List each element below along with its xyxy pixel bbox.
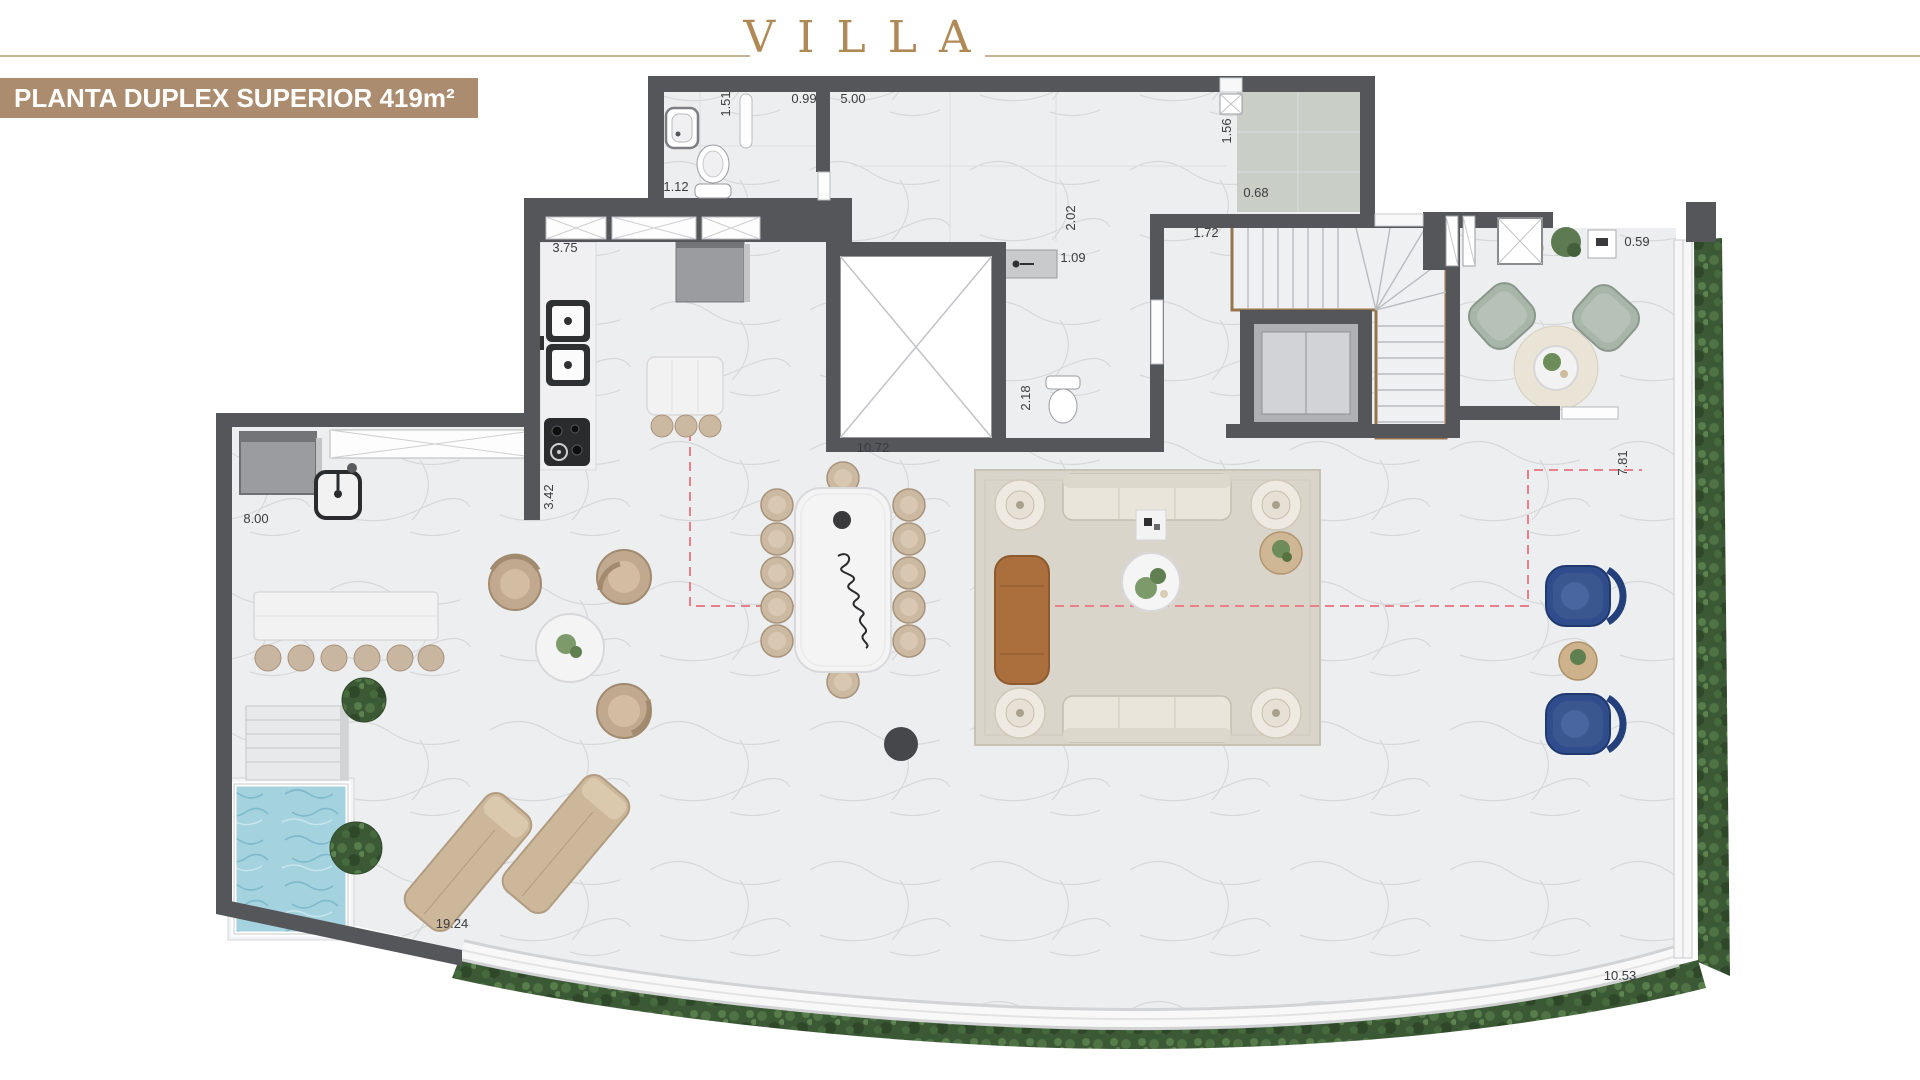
tub-chair xyxy=(597,550,651,604)
kitchen-cabinet xyxy=(676,238,750,302)
dimension-label: 10.53 xyxy=(1604,968,1637,983)
dining-chair xyxy=(893,523,925,555)
dining-chair xyxy=(893,489,925,521)
door-leaf xyxy=(1151,300,1163,364)
sofa xyxy=(1063,696,1231,742)
dimension-label: 2.18 xyxy=(1018,385,1033,410)
leather-daybed xyxy=(995,556,1049,684)
tub-chair xyxy=(597,684,651,738)
window-band xyxy=(1375,214,1423,226)
elevator xyxy=(1240,310,1372,436)
outdoor-sink xyxy=(316,463,360,518)
island-stool xyxy=(699,415,721,437)
dimension-label: 0.59 xyxy=(1624,234,1649,249)
window xyxy=(1220,78,1242,92)
pool-steps xyxy=(246,706,348,780)
dimension-label: 8.00 xyxy=(243,511,268,526)
dimension-label: 5.00 xyxy=(840,91,865,106)
island-stool xyxy=(651,415,673,437)
door-leaf xyxy=(818,172,830,200)
dimension-label: 19.24 xyxy=(436,916,469,931)
toilet xyxy=(1046,376,1080,423)
round-side-table xyxy=(995,688,1045,738)
shrub xyxy=(330,822,382,874)
tub-chair xyxy=(489,556,541,610)
glass-partition xyxy=(740,94,752,148)
kitchen-island xyxy=(647,357,723,415)
wall-oven xyxy=(546,300,590,342)
bathroom-sink xyxy=(666,108,698,148)
island-stool xyxy=(675,415,697,437)
bar-stool xyxy=(418,645,444,671)
round-side-table xyxy=(995,480,1045,530)
dimension-label: 3.42 xyxy=(541,484,556,509)
dimension-label: 10.72 xyxy=(857,440,890,455)
dimension-label: 0.99 xyxy=(791,91,816,106)
plant-table xyxy=(1260,532,1302,574)
bar-stool xyxy=(255,645,281,671)
square-side-table xyxy=(1136,510,1166,540)
round-side-table xyxy=(1251,480,1301,530)
dimension-label: 1.12 xyxy=(663,179,688,194)
toilet xyxy=(695,145,731,198)
dining-chair xyxy=(761,489,793,521)
door-leaf xyxy=(1562,407,1618,419)
dining-chair xyxy=(893,591,925,623)
floor-plan-page: VILLA PLANTA DUPLEX SUPERIOR 419m² xyxy=(0,0,1920,1080)
centerpiece-bowl xyxy=(833,511,851,529)
dimension-label: 1.09 xyxy=(1060,250,1085,265)
bar-stool xyxy=(288,645,314,671)
center-coffee-table xyxy=(1122,553,1180,611)
dining-chair xyxy=(761,557,793,589)
dimension-label: 1.51 xyxy=(718,91,733,116)
round-side-table xyxy=(1251,688,1301,738)
dining-chair xyxy=(893,557,925,589)
cooktop xyxy=(544,418,590,466)
dimension-label: 1.56 xyxy=(1219,118,1234,143)
between-chairs-table xyxy=(1559,642,1597,680)
dining-chair xyxy=(761,523,793,555)
dining-chair xyxy=(893,625,925,657)
hedge-right xyxy=(1694,238,1730,976)
floor-plan: 1.510.995.001.123.751.560.682.021.721.09… xyxy=(0,0,1920,1080)
bar-stool xyxy=(321,645,347,671)
bar-stool xyxy=(387,645,413,671)
wall-oven xyxy=(546,344,590,386)
dimension-label: 1.72 xyxy=(1193,225,1218,240)
dimension-label: 0.68 xyxy=(1243,185,1268,200)
lavabo-sink-counter xyxy=(1005,250,1057,278)
elevator-shaft xyxy=(840,256,992,438)
dining-chair xyxy=(761,591,793,623)
bar-stool xyxy=(354,645,380,671)
dining-chair xyxy=(761,625,793,657)
dimension-label: 3.75 xyxy=(552,240,577,255)
dimension-label: 2.02 xyxy=(1063,205,1078,230)
floor-pouf xyxy=(884,727,918,761)
dimension-label: 7.81 xyxy=(1615,450,1630,475)
shrub xyxy=(342,678,386,722)
